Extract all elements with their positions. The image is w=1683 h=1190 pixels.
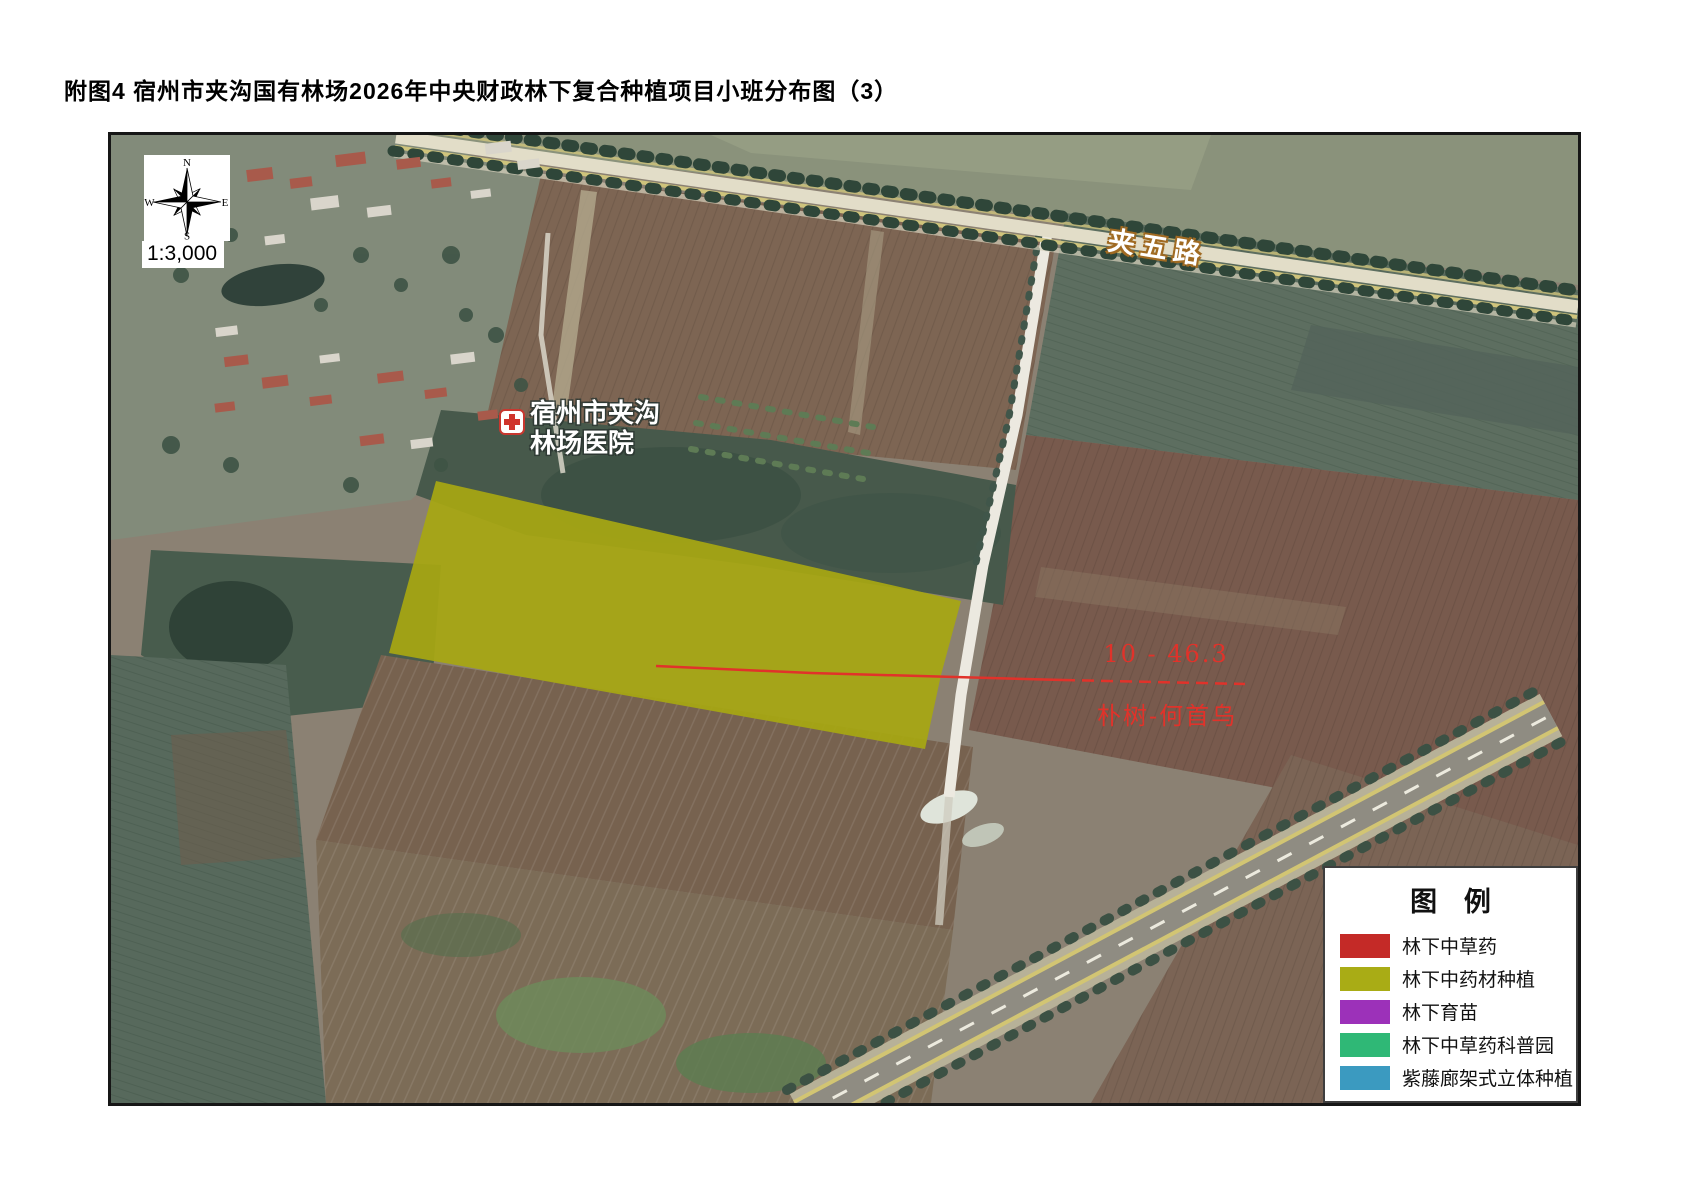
hospital-icon (499, 409, 525, 435)
legend-rows: 林下中草药 林下中药材种植 林下育苗 林下中草药科普园 紫藤廊架式立体种植 (1325, 929, 1576, 1094)
legend-swatch-science-garden (1340, 1033, 1390, 1057)
legend-row: 林下育苗 (1325, 995, 1576, 1028)
compass-n-label: N (183, 157, 191, 169)
compass-rose-graphic: N S W E (144, 155, 230, 241)
hospital-name-line2: 林场医院 (530, 428, 660, 458)
figure-title: 附图4 宿州市夹沟国有林场2026年中央财政林下复合种植项目小班分布图（3） (64, 72, 898, 106)
legend-label: 林下中草药 (1402, 932, 1497, 959)
legend-swatch-seedling (1340, 1000, 1390, 1024)
green-patch-3 (401, 913, 521, 957)
compass-e-label: E (222, 197, 229, 209)
field-patch-bottomleft (171, 730, 301, 865)
tree-canopy-dark-2 (781, 493, 1001, 573)
tree-block-left-dark (169, 581, 293, 673)
legend-row: 林下中药材种植 (1325, 962, 1576, 995)
legend-row: 紫藤廊架式立体种植 (1325, 1061, 1576, 1094)
compass-rose: N S W E (144, 155, 230, 241)
legend-label: 紫藤廊架式立体种植 (1402, 1064, 1573, 1091)
document-page: 附图4 宿州市夹沟国有林场2026年中央财政林下复合种植项目小班分布图（3） (0, 0, 1683, 1190)
map-scale: 1:3,000 (142, 241, 224, 268)
green-patch-1 (496, 977, 666, 1053)
legend-title: 图 例 (1325, 880, 1576, 919)
parcel-code-label: 10 - 46.3 (1096, 640, 1236, 668)
legend-label: 林下中草药科普园 (1402, 1031, 1554, 1058)
legend-label: 林下中药材种植 (1402, 965, 1535, 992)
legend-row: 林下中草药科普园 (1325, 1028, 1576, 1061)
legend-row: 林下中草药 (1325, 929, 1576, 962)
map-canvas: N S W E 1:3,000 夹五路 宿州市夹沟 林场医院 10 - 46.3… (108, 132, 1581, 1106)
legend-swatch-wisteria (1340, 1066, 1390, 1090)
legend: 图 例 林下中草药 林下中药材种植 林下育苗 林下中草药科普园 (1323, 866, 1578, 1103)
legend-label: 林下育苗 (1402, 998, 1478, 1025)
compass-s-label: S (184, 231, 190, 242)
hospital-name-line1: 宿州市夹沟 (530, 398, 660, 428)
legend-swatch-herb (1340, 934, 1390, 958)
parcel-species-label: 朴树-何首乌 (1097, 696, 1237, 731)
compass-w-label: W (144, 197, 155, 209)
hospital-label: 宿州市夹沟 林场医院 (530, 398, 660, 458)
legend-swatch-medicinal-planting (1340, 967, 1390, 991)
